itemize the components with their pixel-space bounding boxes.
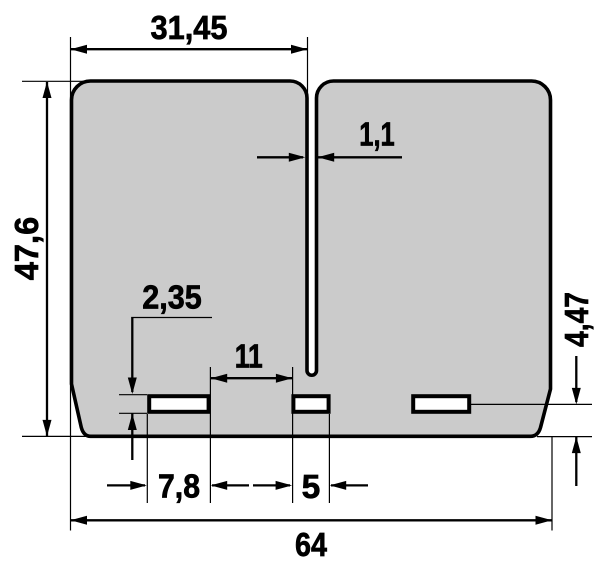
svg-text:4,47: 4,47 (559, 292, 596, 347)
svg-text:47,6: 47,6 (9, 217, 46, 281)
svg-text:7,8: 7,8 (158, 469, 200, 506)
svg-text:31,45: 31,45 (151, 10, 228, 47)
svg-text:5: 5 (302, 469, 321, 506)
svg-text:1,1: 1,1 (359, 117, 395, 154)
svg-text:64: 64 (295, 527, 327, 564)
svg-text:11: 11 (235, 339, 263, 376)
svg-text:2,35: 2,35 (142, 280, 202, 317)
